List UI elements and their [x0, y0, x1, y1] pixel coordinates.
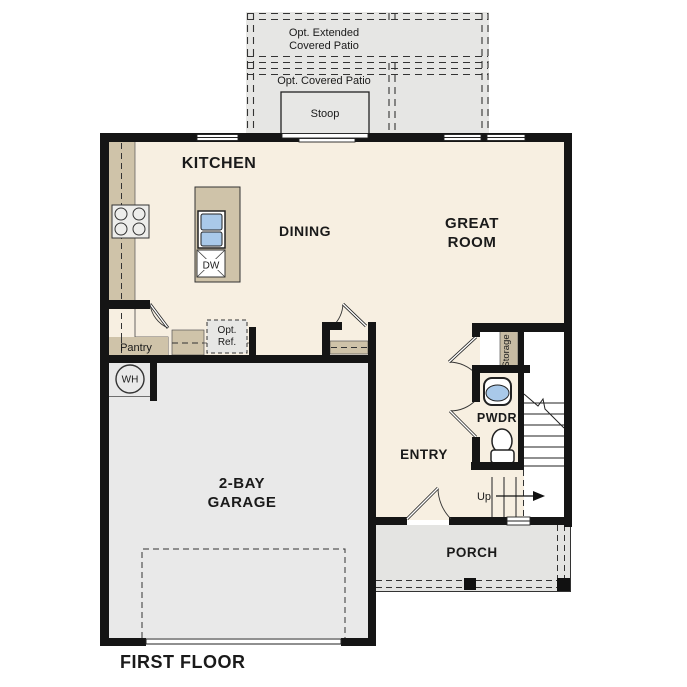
pantry-label: Pantry — [120, 342, 152, 354]
garage-door — [146, 639, 341, 644]
extended-patio-label-line2: Covered Patio — [289, 40, 359, 52]
room-label-great-room-line2: ROOM — [448, 234, 497, 251]
room-label-dining: DINING — [279, 223, 331, 239]
room-label-kitchen: KITCHEN — [182, 155, 257, 172]
stoop-label: Stoop — [311, 108, 340, 120]
porch-post — [464, 578, 476, 590]
extended-patio-label-line1: Opt. Extended — [289, 27, 359, 39]
sink-basin — [201, 232, 222, 246]
floor-plan: Opt. Extended Covered Patio Opt. Covered… — [0, 0, 687, 687]
dishwasher-label: DW — [203, 261, 220, 272]
patio-area: Opt. Extended Covered Patio Opt. Covered… — [246, 12, 489, 135]
toilet-tank — [491, 450, 514, 463]
room-label-entry: ENTRY — [400, 447, 448, 462]
porch-post — [557, 578, 570, 591]
opt-ref-label-line1: Opt. — [218, 325, 237, 336]
room-label-great-room-line1: GREAT — [445, 215, 499, 232]
water-heater-label: WH — [122, 375, 139, 386]
storage-label: Storage — [501, 334, 512, 367]
opt-ref-label-line2: Ref. — [218, 337, 236, 348]
sink-basin — [201, 214, 222, 230]
room-label-powder: PWDR — [477, 411, 517, 425]
sliding-patio-door — [282, 134, 368, 139]
sliding-patio-door-panel — [299, 139, 355, 143]
covered-patio-label: Opt. Covered Patio — [277, 75, 371, 87]
room-label-garage-line1: 2-BAY — [219, 475, 265, 492]
floor-plan-page: Opt. Extended Covered Patio Opt. Covered… — [0, 0, 687, 687]
sink-bowl — [486, 385, 509, 401]
floor-title: FIRST FLOOR — [120, 652, 246, 672]
room-label-porch: PORCH — [446, 545, 497, 560]
stairs-up-label: Up — [477, 491, 491, 503]
room-label-garage-line2: GARAGE — [208, 494, 277, 511]
